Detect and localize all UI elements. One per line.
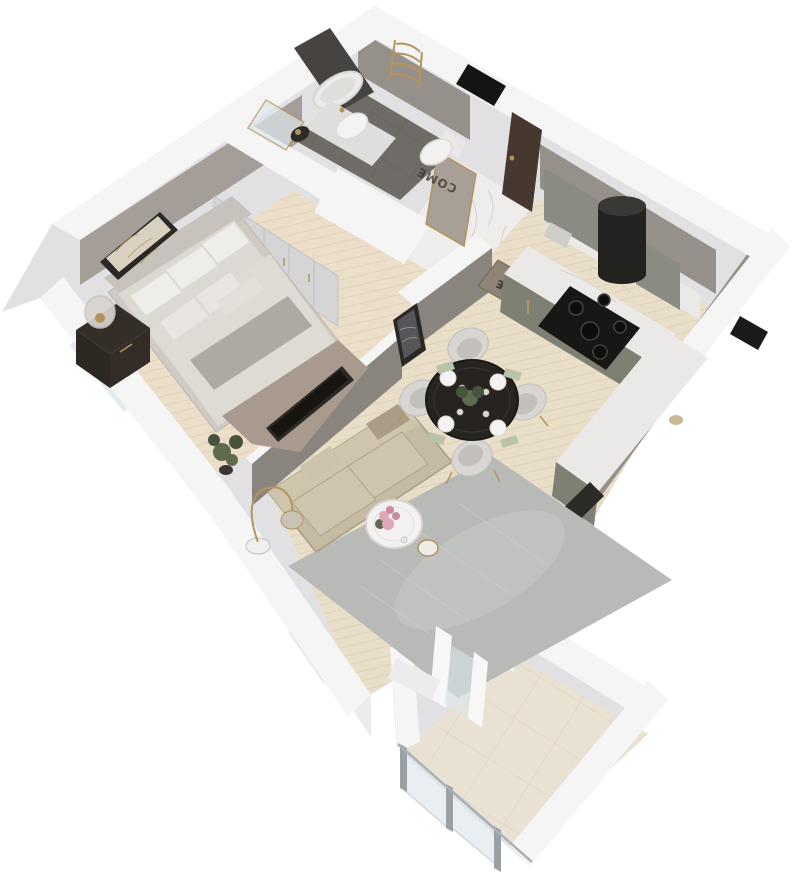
- hood-bottom: [598, 264, 646, 284]
- hood-body: [598, 206, 646, 274]
- burner: [593, 345, 607, 359]
- flower: [382, 518, 394, 530]
- counter-jar: [669, 415, 683, 425]
- plant-leaves: [226, 454, 238, 466]
- range-hood: [598, 196, 646, 284]
- centerpiece-leaf: [472, 386, 484, 398]
- plate: [438, 416, 454, 432]
- flower: [386, 506, 394, 514]
- plate: [490, 420, 506, 436]
- burner: [614, 321, 626, 333]
- lamp-shade: [281, 511, 303, 529]
- burner: [569, 301, 583, 315]
- plant-pot: [219, 465, 233, 475]
- plant-leaves: [229, 435, 243, 449]
- candle: [401, 537, 407, 543]
- door-handle: [510, 156, 515, 161]
- faucet: [340, 108, 345, 113]
- centerpiece-leaf: [456, 386, 468, 398]
- kitchen-window: [730, 316, 768, 350]
- burner: [598, 294, 610, 306]
- burner: [581, 322, 599, 340]
- side-table: [418, 540, 438, 556]
- bedside-lamp: [85, 296, 115, 328]
- hood-top: [598, 196, 646, 216]
- lamp-globe: [85, 296, 115, 328]
- flower: [392, 512, 400, 520]
- isometric-floor-plan: COME ME: [0, 0, 800, 893]
- stool-accent: [295, 129, 301, 135]
- floor-plan-render: COME ME: [0, 0, 800, 893]
- plate: [490, 374, 506, 390]
- lamp-bulb: [95, 313, 105, 323]
- glass: [457, 409, 463, 415]
- plant-leaves: [208, 434, 220, 446]
- glass: [483, 411, 489, 417]
